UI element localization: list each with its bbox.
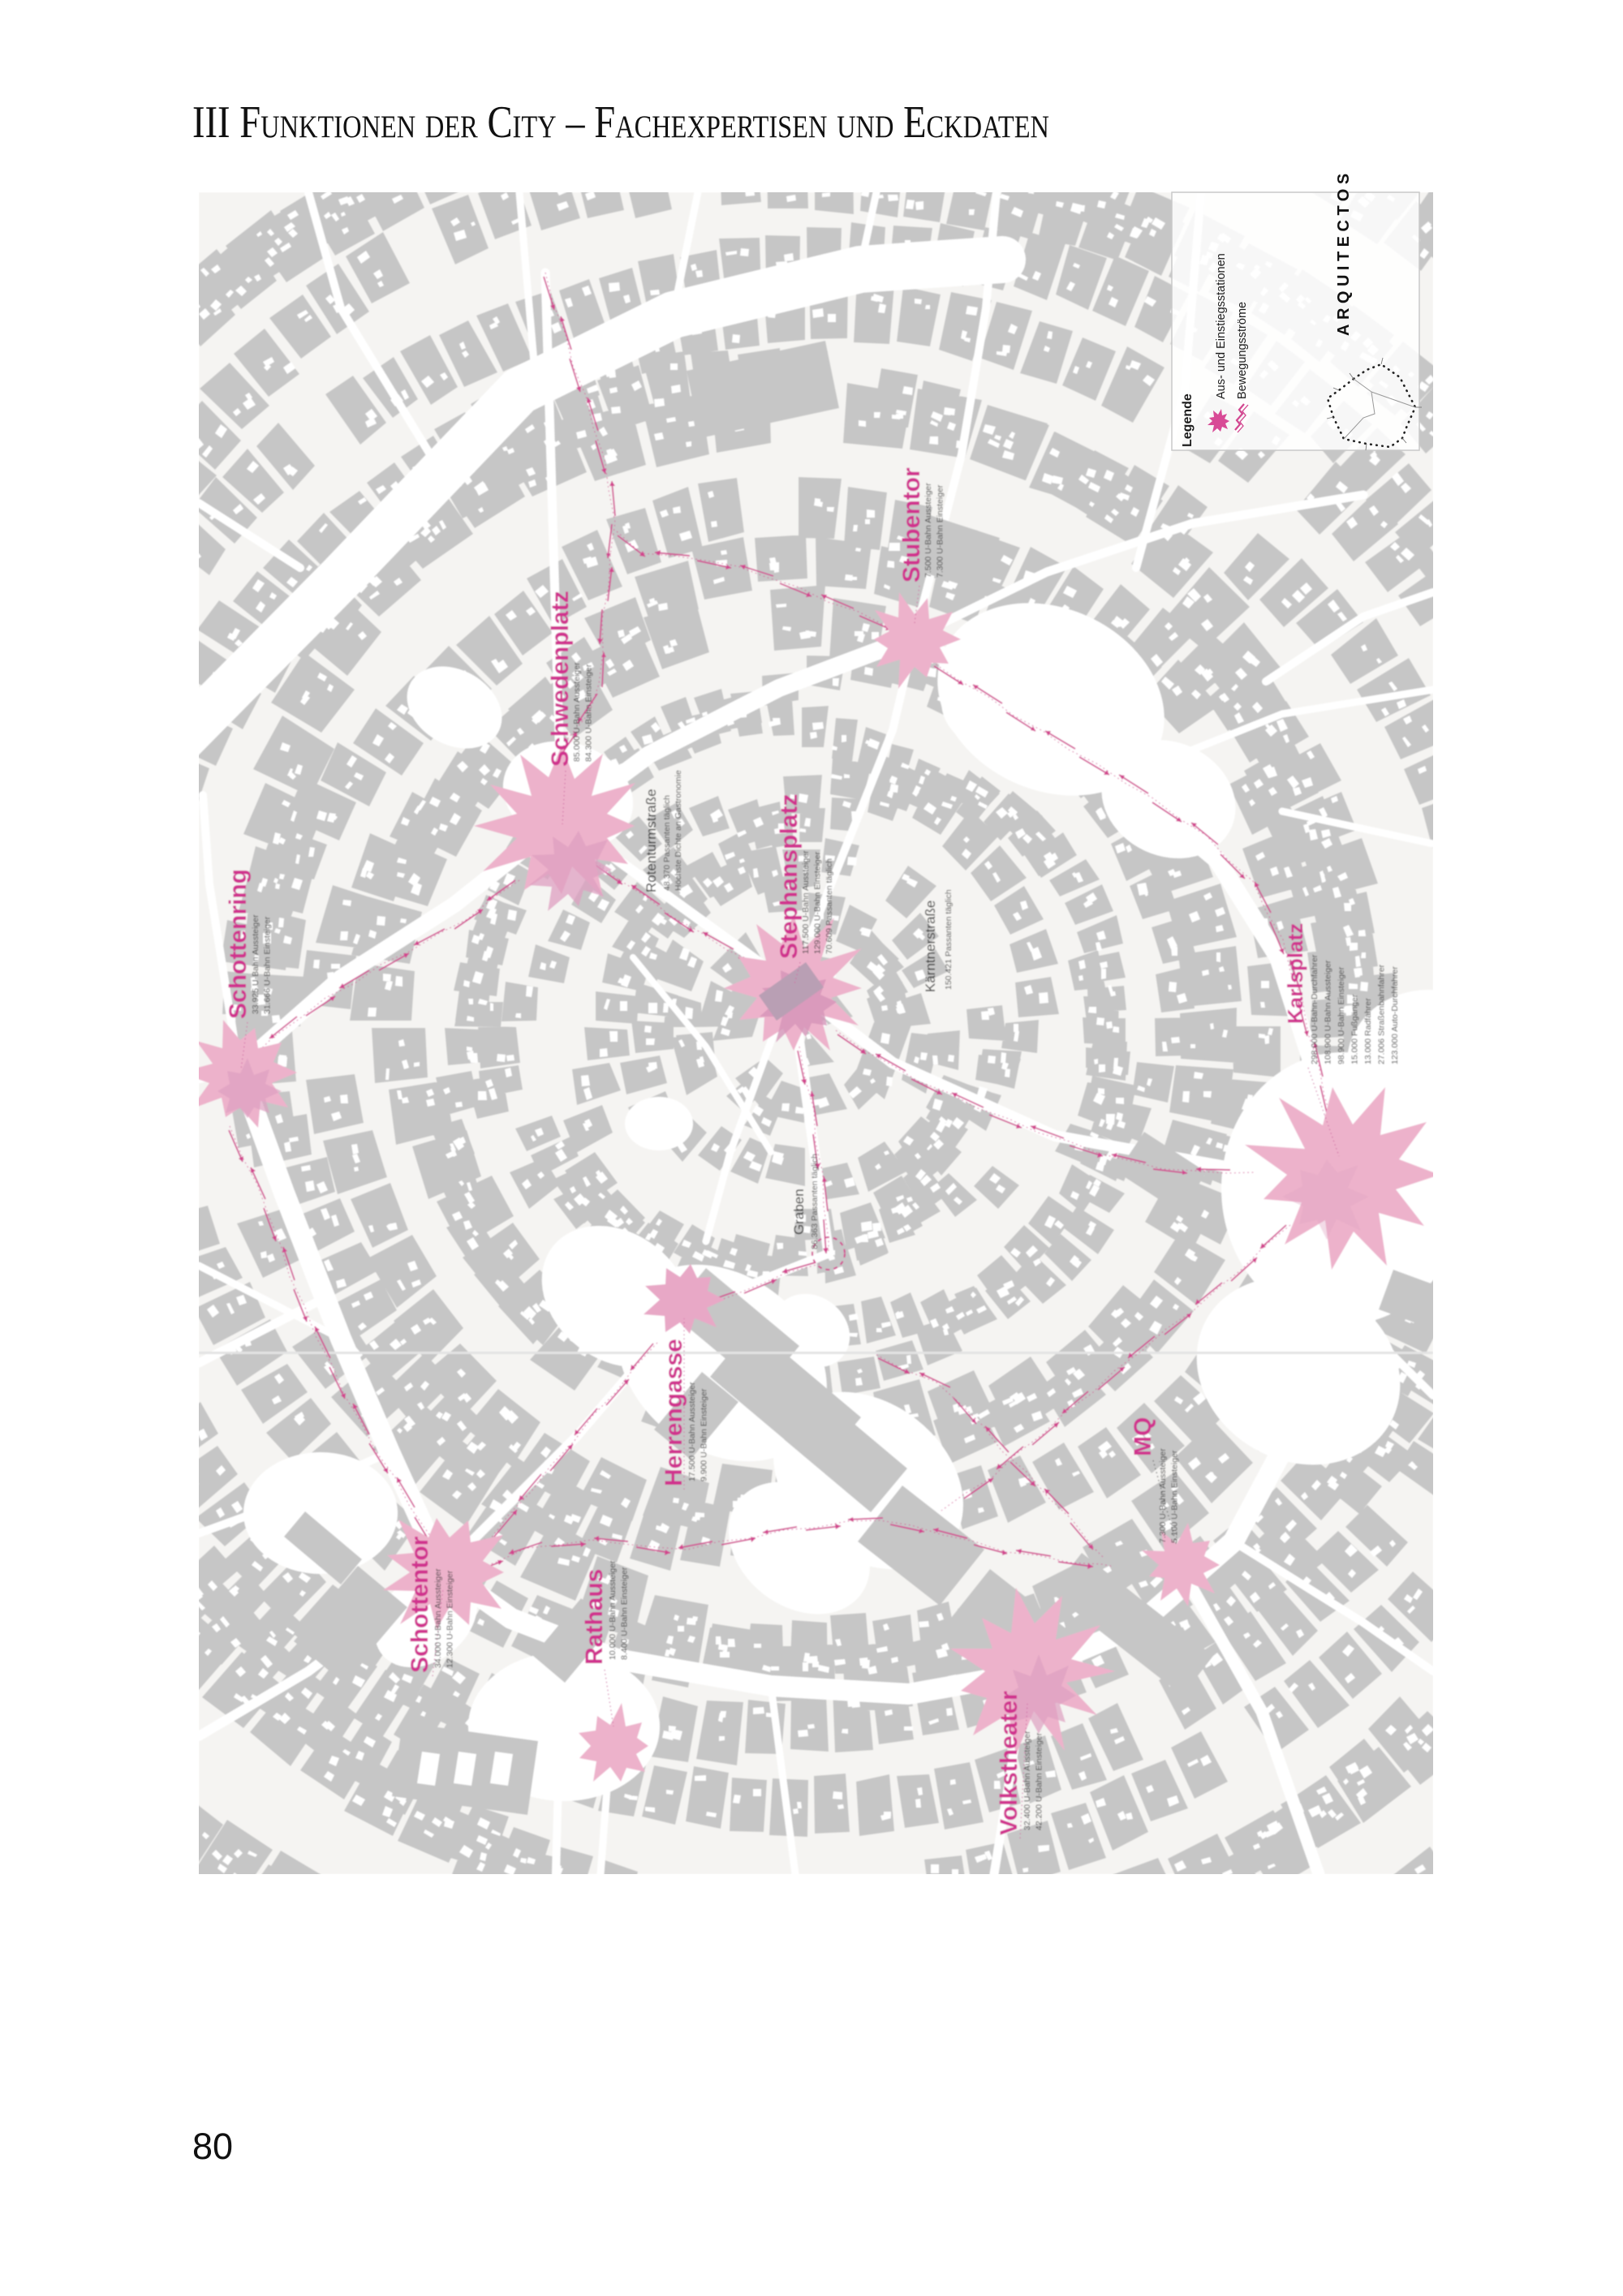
svg-text:7.300 U-Bahn Aussteiger: 7.300 U-Bahn Aussteiger	[1158, 1448, 1168, 1543]
svg-text:Karlsplatz: Karlsplatz	[1283, 923, 1307, 1024]
svg-text:27.006 Straßenbahnfahrer: 27.006 Straßenbahnfahrer	[1377, 964, 1387, 1064]
svg-text:129.000 U-Bahn Einsteiger: 129.000 U-Bahn Einsteiger	[813, 851, 823, 954]
svg-text:48.370 Passanten täglich: 48.370 Passanten täglich	[662, 795, 672, 891]
svg-text:Bewegungsströme: Bewegungsströme	[1236, 302, 1249, 399]
svg-text:7.300 U-Bahn Einsteiger: 7.300 U-Bahn Einsteiger	[936, 484, 945, 578]
svg-text:5.100 U-Bahn Einsteiger: 5.100 U-Bahn Einsteiger	[1170, 1450, 1180, 1543]
svg-text:42.200 U-Bahn Einsteiger: 42.200 U-Bahn Einsteiger	[1035, 1732, 1044, 1830]
svg-text:70.609 Passanten täglich: 70.609 Passanten täglich	[824, 858, 834, 954]
svg-text:Graben: Graben	[791, 1189, 807, 1235]
svg-text:17.500 U-Bahn Aussteiger: 17.500 U-Bahn Aussteiger	[687, 1382, 697, 1481]
svg-text:86.363 Passanten täglich: 86.363 Passanten täglich	[810, 1154, 820, 1249]
svg-text:8.400 U-Bahn Einsteiger: 8.400 U-Bahn Einsteiger	[620, 1567, 630, 1660]
svg-text:Legende: Legende	[1181, 393, 1195, 447]
svg-text:117.500 U-Bahn Aussteiger: 117.500 U-Bahn Aussteiger	[801, 850, 811, 954]
svg-text:9.900 U-Bahn Einsteiger: 9.900 U-Bahn Einsteiger	[700, 1388, 709, 1481]
svg-text:150.421 Passanten täglich: 150.421 Passanten täglich	[944, 889, 954, 990]
svg-text:Volkstheater: Volkstheater	[996, 1691, 1022, 1835]
svg-text:80: 80	[192, 2126, 233, 2167]
svg-text:31.666 U-Bahn Einsteiger: 31.666 U-Bahn Einsteiger	[263, 916, 273, 1014]
svg-text:MQ: MQ	[1130, 1417, 1156, 1456]
svg-text:33.925 U-Bahn Aussteiger: 33.925 U-Bahn Aussteiger	[251, 914, 260, 1014]
svg-text:32.400 U-Bahn Aussteiger: 32.400 U-Bahn Aussteiger	[1022, 1731, 1032, 1830]
svg-text:13.000 Radfahrer: 13.000 Radfahrer	[1363, 998, 1373, 1064]
svg-text:15.000 Fußgänger: 15.000 Fußgänger	[1350, 994, 1360, 1064]
svg-text:Stubentor: Stubentor	[898, 467, 925, 583]
svg-text:85.000 U-Bahn Aussteiger: 85.000 U-Bahn Aussteiger	[572, 662, 582, 762]
svg-text:Rathaus: Rathaus	[581, 1569, 608, 1665]
svg-text:10.000 U-Bahn Aussteiger: 10.000 U-Bahn Aussteiger	[608, 1560, 618, 1660]
svg-text:Kärntnerstraße: Kärntnerstraße	[923, 901, 938, 992]
svg-text:ARQUITECTOS: ARQUITECTOS	[1335, 169, 1353, 336]
svg-text:298.000 U-Bahn-Durchfahrer: 298.000 U-Bahn-Durchfahrer	[1310, 954, 1319, 1064]
svg-text:Aus- und Einstiegsstationen: Aus- und Einstiegsstationen	[1215, 253, 1228, 399]
svg-text:Herrengasse: Herrengasse	[661, 1339, 687, 1486]
svg-text:123.000 Auto-Durchfahrer: 123.000 Auto-Durchfahrer	[1390, 966, 1400, 1064]
svg-text:III Funktionen der City – Fach: III Funktionen der City – Fachexpertisen…	[192, 97, 1049, 148]
svg-text:108.900 U-Bahn Aussteiger: 108.900 U-Bahn Aussteiger	[1324, 960, 1333, 1064]
svg-text:Schottentor: Schottentor	[407, 1536, 433, 1673]
svg-text:Schwedenplatz: Schwedenplatz	[547, 591, 574, 767]
svg-text:Höchste Dichte an Gastronomie: Höchste Dichte an Gastronomie	[674, 770, 683, 891]
svg-text:7.500 U-Bahn Aussteiger: 7.500 U-Bahn Aussteiger	[923, 483, 933, 578]
svg-text:Schottenring: Schottenring	[225, 869, 252, 1019]
svg-text:34.000 U-Bahn Aussteiger: 34.000 U-Bahn Aussteiger	[433, 1568, 443, 1668]
svg-text:Stephansplatz: Stephansplatz	[776, 794, 803, 959]
svg-text:98.900 U-Bahn Einsteiger: 98.900 U-Bahn Einsteiger	[1337, 966, 1346, 1064]
svg-text:84.300 U-Bahn Einsteiger: 84.300 U-Bahn Einsteiger	[584, 664, 594, 762]
svg-text:Rotenturmstraße: Rotenturmstraße	[644, 789, 659, 892]
svg-text:12.300 U-Bahn Einsteiger: 12.300 U-Bahn Einsteiger	[446, 1570, 455, 1668]
